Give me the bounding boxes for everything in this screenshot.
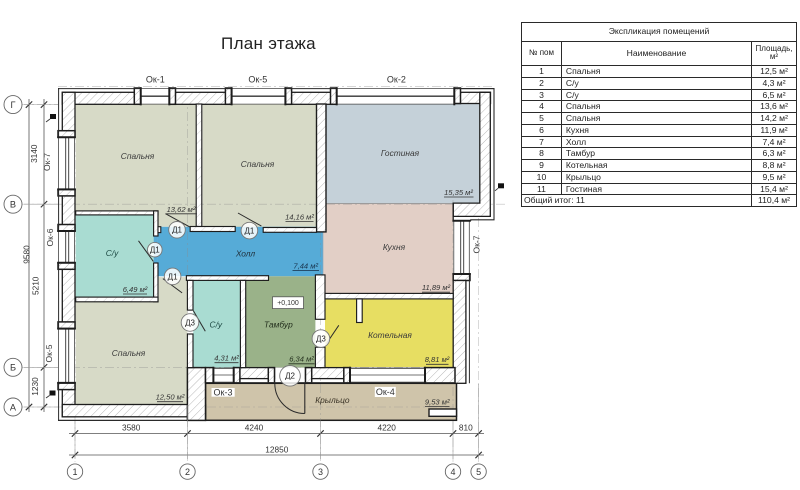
svg-text:Д1: Д1: [172, 226, 182, 235]
svg-text:15,35 м²: 15,35 м²: [444, 188, 473, 197]
svg-text:Ок-1: Ок-1: [146, 75, 165, 85]
svg-text:В: В: [10, 200, 16, 210]
svg-text:4220: 4220: [377, 423, 396, 433]
svg-text:3580: 3580: [122, 423, 141, 433]
svg-text:Д1: Д1: [150, 246, 160, 255]
svg-text:9,53 м²: 9,53 м²: [425, 397, 450, 406]
svg-text:3: 3: [318, 467, 323, 477]
svg-text:Д3: Д3: [185, 318, 195, 327]
svg-text:Г: Г: [11, 100, 16, 110]
svg-text:Тамбур: Тамбур: [264, 320, 293, 330]
svg-text:Гостиная: Гостиная: [381, 148, 420, 158]
svg-text:Ок-4: Ок-4: [376, 387, 395, 397]
svg-text:4240: 4240: [245, 423, 264, 433]
svg-text:1230: 1230: [30, 377, 40, 396]
svg-text:11,89 м²: 11,89 м²: [422, 283, 451, 292]
svg-text:6,49 м²: 6,49 м²: [123, 285, 148, 294]
svg-text:14,16 м²: 14,16 м²: [285, 212, 314, 221]
svg-text:8,81 м²: 8,81 м²: [425, 355, 450, 364]
svg-text:С/у: С/у: [210, 320, 223, 330]
svg-text:Спальня: Спальня: [121, 151, 155, 161]
svg-text:6,34 м²: 6,34 м²: [289, 355, 314, 364]
svg-text:Д2: Д2: [285, 372, 295, 381]
svg-text:Д1: Д1: [168, 272, 178, 281]
svg-text:4,31 м²: 4,31 м²: [214, 354, 239, 363]
svg-text:План этажа: План этажа: [221, 34, 316, 53]
svg-text:А: А: [10, 402, 17, 412]
svg-text:1: 1: [72, 467, 77, 477]
svg-text:Спальня: Спальня: [241, 159, 275, 169]
svg-text:12,50 м²: 12,50 м²: [156, 393, 185, 402]
svg-text:Котельная: Котельная: [368, 330, 412, 340]
svg-text:+0,100: +0,100: [277, 300, 299, 307]
svg-text:7,44 м²: 7,44 м²: [293, 261, 318, 270]
svg-text:9580: 9580: [21, 245, 31, 264]
svg-text:С/у: С/у: [106, 248, 119, 258]
svg-text:Ок-5: Ок-5: [248, 75, 267, 85]
svg-text:Д1: Д1: [244, 226, 254, 235]
svg-text:Крыльцо: Крыльцо: [315, 395, 350, 405]
svg-text:5210: 5210: [31, 276, 41, 295]
svg-text:Ок-2: Ок-2: [387, 75, 406, 85]
svg-text:4: 4: [450, 467, 455, 477]
svg-text:12850: 12850: [265, 444, 288, 454]
svg-text:3140: 3140: [29, 144, 39, 163]
svg-text:Ок-3: Ок-3: [214, 388, 233, 398]
svg-text:Ок-7: Ок-7: [42, 153, 52, 171]
svg-text:Холл: Холл: [235, 249, 256, 259]
svg-text:Спальня: Спальня: [112, 348, 146, 358]
svg-text:Ок-7: Ок-7: [472, 235, 482, 253]
svg-text:Ок-6: Ок-6: [45, 228, 55, 246]
svg-text:2: 2: [185, 467, 190, 477]
svg-text:810: 810: [459, 423, 473, 433]
svg-text:Д3: Д3: [316, 334, 326, 343]
svg-text:Ок-5: Ок-5: [44, 344, 54, 362]
svg-text:Кухня: Кухня: [383, 242, 406, 252]
svg-text:Б: Б: [10, 363, 16, 373]
svg-text:5: 5: [476, 467, 481, 477]
svg-text:13,62 м²: 13,62 м²: [167, 205, 196, 214]
